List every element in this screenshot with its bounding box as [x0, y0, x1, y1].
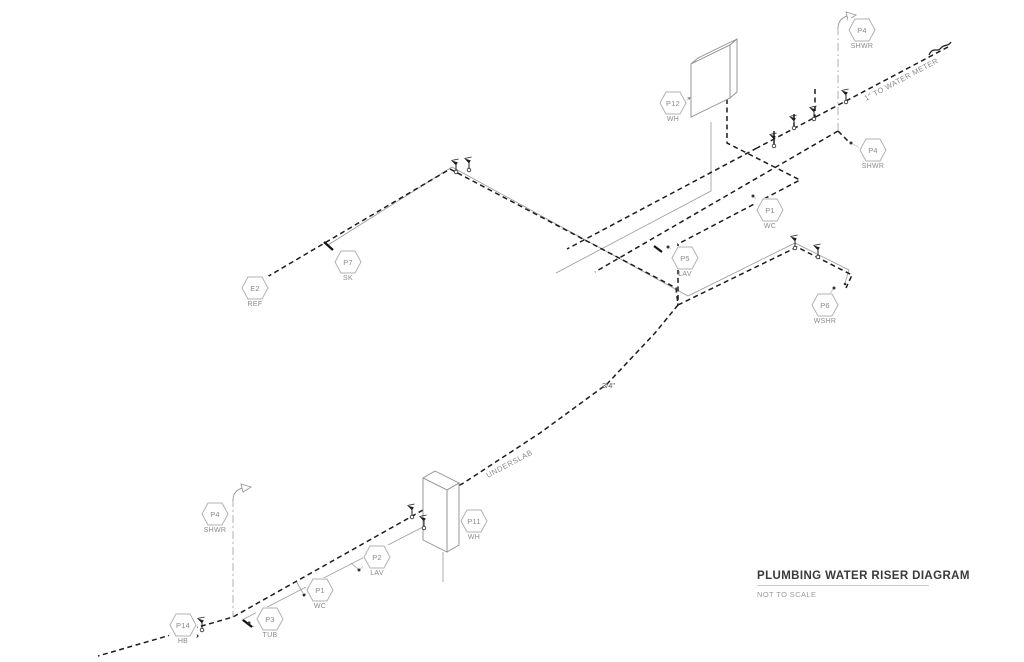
tag-sublabel: WH — [452, 534, 496, 541]
tag-sublabel: SHWR — [193, 527, 237, 534]
underslab-run — [455, 305, 678, 487]
fixture-tag-p1-wc-lower: P1 WC — [298, 578, 342, 610]
tag-sublabel: LAV — [663, 271, 707, 278]
tag-label: P3 — [256, 607, 284, 631]
tag-sublabel: WSHR — [803, 318, 847, 325]
tag-leaders — [193, 97, 860, 636]
water-meter-label: 1" TO WATER METER — [863, 56, 940, 103]
pipe-break-symbol — [929, 42, 951, 55]
fixture-tag-p4-shwr-right: P4 SHWR — [851, 138, 895, 170]
fixture-tag-p6-wshr: P6 WSHR — [803, 293, 847, 325]
fixture-tag-p12-wh: P12 WH — [651, 91, 695, 123]
tag-sublabel: WC — [748, 223, 792, 230]
tag-sublabel: SHWR — [840, 43, 884, 50]
tag-label: P1 — [306, 578, 334, 602]
scale-note: NOT TO SCALE — [757, 590, 987, 599]
tag-label: E2 — [241, 276, 269, 300]
pipe-size-label: 3/4" — [602, 381, 615, 390]
kitchen-run — [267, 169, 678, 305]
tag-label: P7 — [334, 250, 362, 274]
tag-label: P1 — [756, 198, 784, 222]
fixture-tag-p4-shwr-top: P4 SHWR — [840, 18, 884, 50]
tag-sublabel: WC — [298, 603, 342, 610]
fixture-tag-p4-shwr-bottom: P4 SHWR — [193, 502, 237, 534]
title-block: PLUMBING WATER RISER DIAGRAM NOT TO SCAL… — [757, 570, 987, 599]
tag-label: P4 — [859, 138, 887, 162]
tag-label: P2 — [363, 545, 391, 569]
fixture-tag-e2-ref: E2 REF — [233, 276, 277, 308]
drawing-title: PLUMBING WATER RISER DIAGRAM — [757, 570, 987, 582]
piping-network: 1" TO WATER METER 3/4" UNDERSLAB — [0, 0, 1024, 662]
fixture-tag-p1-wc-upper: P1 WC — [748, 198, 792, 230]
tag-sublabel: SK — [326, 275, 370, 282]
water-meter-line — [757, 47, 948, 148]
tag-sublabel: REF — [233, 301, 277, 308]
fixture-tag-p5-lav: P5 LAV — [663, 246, 707, 278]
water-heater-p12 — [691, 39, 737, 117]
fixture-tag-p11-wh: P11 WH — [452, 509, 496, 541]
fixture-tag-p14-hb: P14 HB — [161, 613, 205, 645]
fixture-tag-p7-sk: P7 SK — [326, 250, 370, 282]
tag-label: P4 — [848, 18, 876, 42]
tag-label: P14 — [169, 613, 197, 637]
tag-sublabel: TUB — [248, 632, 292, 639]
tag-label: P12 — [659, 91, 687, 115]
shower-risers — [233, 27, 838, 617]
fixture-tag-p2-lav: P2 LAV — [355, 545, 399, 577]
valves — [197, 89, 848, 632]
tag-sublabel: SHWR — [851, 163, 895, 170]
tag-sublabel: LAV — [355, 570, 399, 577]
tag-label: P4 — [201, 502, 229, 526]
tag-label: P5 — [671, 246, 699, 270]
tag-sublabel: HB — [161, 638, 205, 645]
title-underline — [757, 585, 929, 586]
flow-arrows — [243, 242, 662, 627]
fixture-tag-p3-tub: P3 TUB — [248, 607, 292, 639]
tag-label: P11 — [460, 509, 488, 533]
tag-label: P6 — [811, 293, 839, 317]
riser-diagram-canvas: 1" TO WATER METER 3/4" UNDERSLAB P4 SHWR… — [0, 0, 1024, 662]
shower-arm-bottom — [233, 484, 251, 501]
tag-sublabel: WH — [651, 116, 695, 123]
cold-water-pipes — [98, 47, 948, 656]
